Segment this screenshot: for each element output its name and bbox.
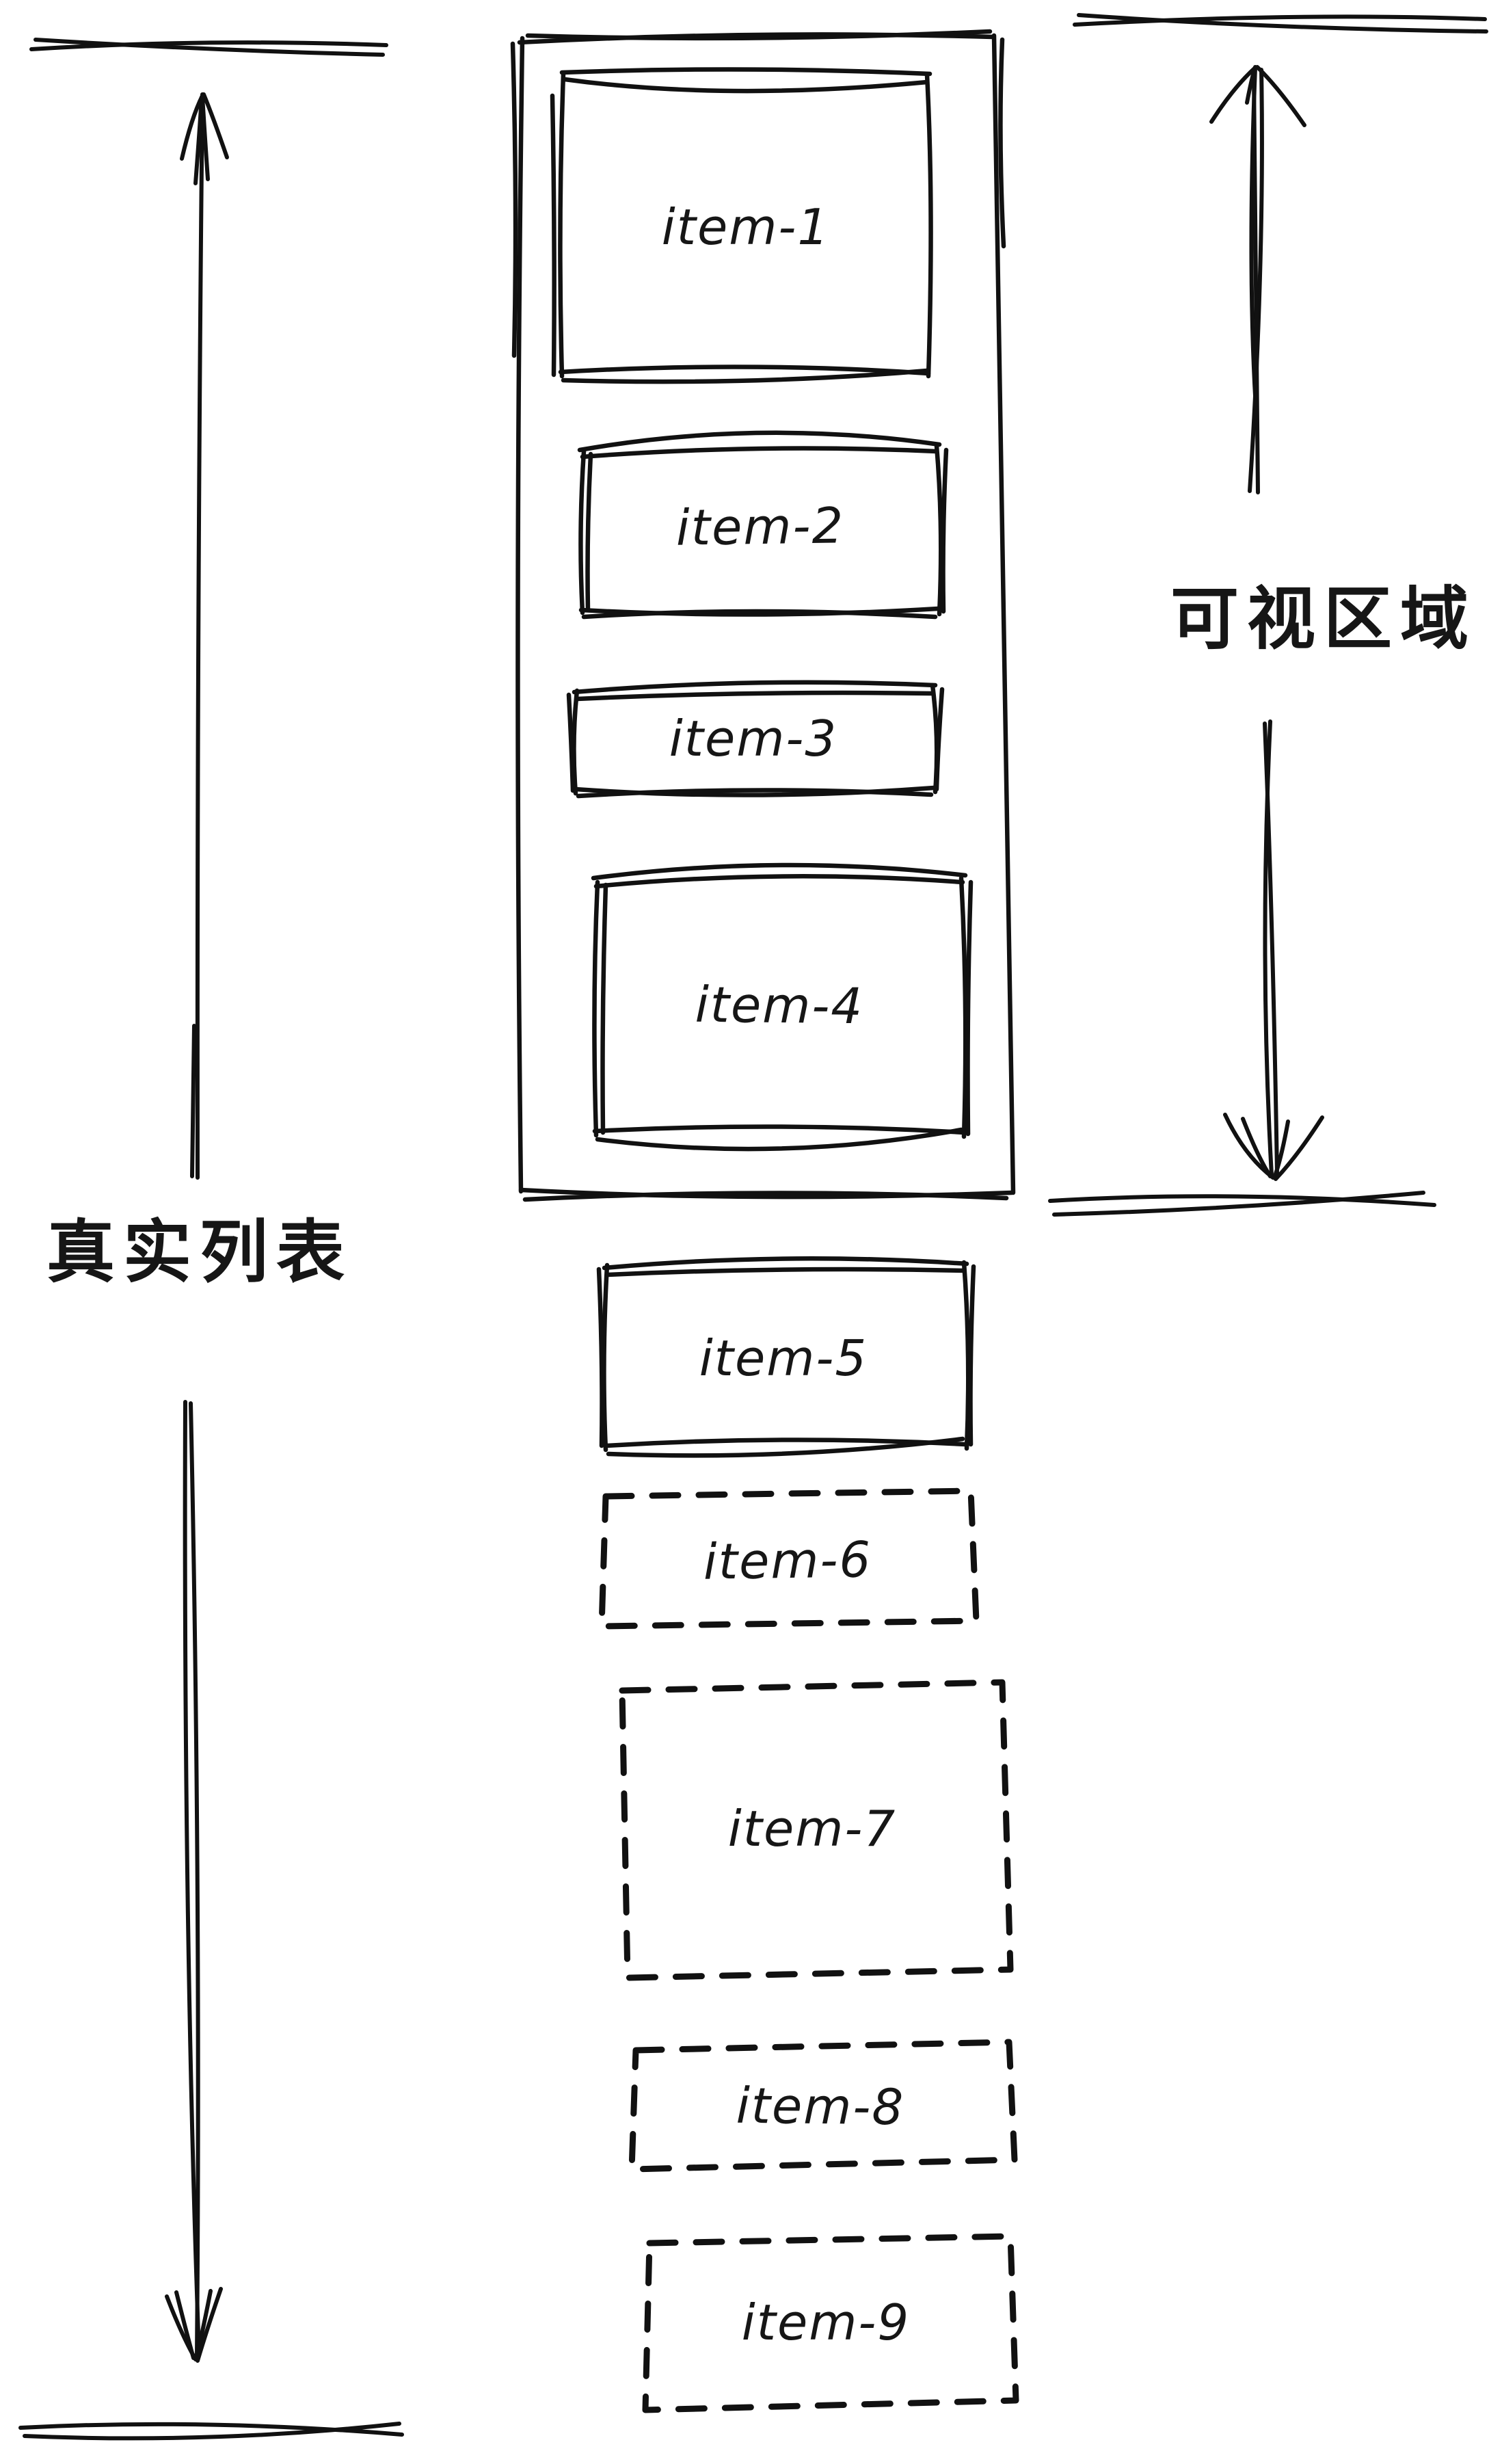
item-8-label: item-8 (736, 2077, 904, 2136)
bottom-left-boundary-line (21, 2424, 402, 2438)
top-right-boundary-line (1075, 15, 1486, 31)
real-list-down-arrow (167, 1402, 221, 2361)
item-5-label: item-5 (699, 1329, 868, 1387)
sketch-diagram: item-1 item-2 item-3 item-4 item-5 item-… (0, 0, 1489, 2464)
item-4-label: item-4 (695, 976, 863, 1035)
real-list-up-arrow (182, 94, 227, 1178)
visible-area-down-arrow (1225, 721, 1322, 1179)
item-3-label: item-3 (669, 710, 837, 767)
visible-area-up-arrow (1211, 67, 1304, 492)
bottom-right-boundary-line (1050, 1193, 1434, 1215)
top-left-boundary-line (31, 40, 386, 55)
item-6-label: item-6 (703, 1531, 872, 1590)
item-2-label: item-2 (675, 496, 845, 556)
item-7-label: item-7 (728, 1800, 896, 1857)
real-list-annotation: 真实列表 (46, 1197, 353, 1296)
visible-area-annotation: 可视区域 (1170, 564, 1477, 663)
item-9-label: item-9 (742, 2294, 910, 2351)
item-1-label: item-1 (662, 198, 830, 256)
